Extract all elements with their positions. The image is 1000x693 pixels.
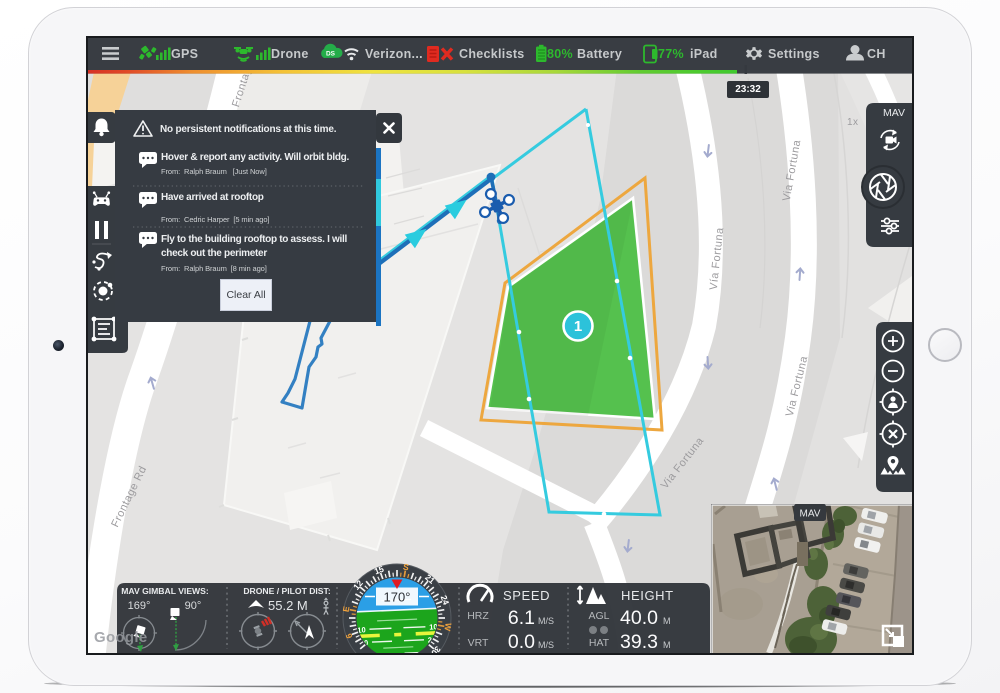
svg-text:DRONE / PILOT DIST:: DRONE / PILOT DIST:	[243, 586, 331, 596]
svg-text:0.0: 0.0	[508, 631, 535, 653]
svg-text:55.2 M: 55.2 M	[268, 598, 308, 613]
svg-text:HRZ: HRZ	[467, 610, 489, 622]
svg-text:CH: CH	[867, 47, 886, 61]
svg-text:SPEED: SPEED	[503, 588, 550, 603]
svg-text:M: M	[663, 640, 671, 650]
svg-text:AGL: AGL	[588, 610, 609, 622]
svg-text:VRT: VRT	[468, 637, 489, 649]
svg-text:iPad: iPad	[690, 47, 718, 61]
svg-text:Drone: Drone	[271, 47, 309, 61]
svg-text:MAV: MAV	[800, 509, 821, 520]
svg-text:Battery: Battery	[577, 47, 622, 61]
svg-text:77%: 77%	[658, 47, 684, 61]
svg-text:M/S: M/S	[538, 640, 554, 650]
svg-text:90°: 90°	[185, 600, 202, 612]
svg-text:MAV: MAV	[883, 107, 905, 119]
svg-text:1: 1	[574, 318, 582, 335]
svg-text:169°: 169°	[128, 600, 151, 612]
svg-text:170°: 170°	[384, 590, 411, 605]
svg-text:HAT: HAT	[589, 637, 610, 649]
svg-text:40.0: 40.0	[620, 607, 658, 629]
svg-text:39.3: 39.3	[620, 631, 658, 653]
svg-text:Settings: Settings	[768, 47, 820, 61]
svg-text:80%: 80%	[547, 47, 573, 61]
svg-text:M/S: M/S	[538, 616, 554, 626]
svg-text:MAV GIMBAL VIEWS:: MAV GIMBAL VIEWS:	[121, 586, 209, 596]
svg-text:Verizon...: Verizon...	[365, 47, 423, 61]
svg-text:DS: DS	[326, 51, 336, 58]
svg-text:M: M	[663, 616, 671, 626]
svg-text:GPS: GPS	[171, 47, 198, 61]
svg-text:HEIGHT: HEIGHT	[621, 588, 674, 603]
svg-text:6.1: 6.1	[508, 607, 535, 629]
svg-text:Checklists: Checklists	[459, 47, 525, 61]
